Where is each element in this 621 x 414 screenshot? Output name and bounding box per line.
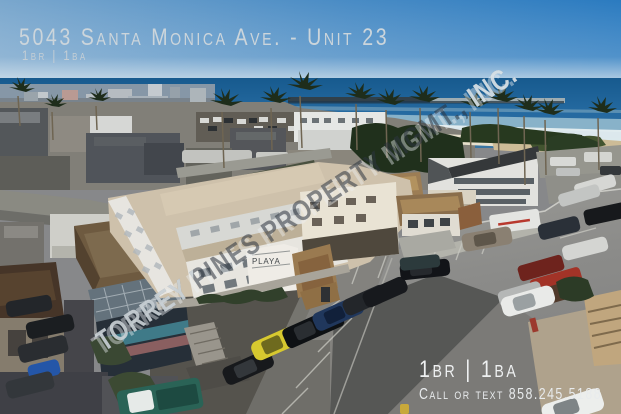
svg-text:1br | 1ba: 1br | 1ba: [419, 355, 516, 383]
svg-text:5043 Santa Monica Ave. - Unit: 5043 Santa Monica Ave. - Unit 23: [19, 23, 387, 51]
svg-text:1br | 1ba: 1br | 1ba: [22, 48, 85, 63]
svg-text:Call or text 858.245.5188: Call or text 858.245.5188: [419, 385, 601, 403]
